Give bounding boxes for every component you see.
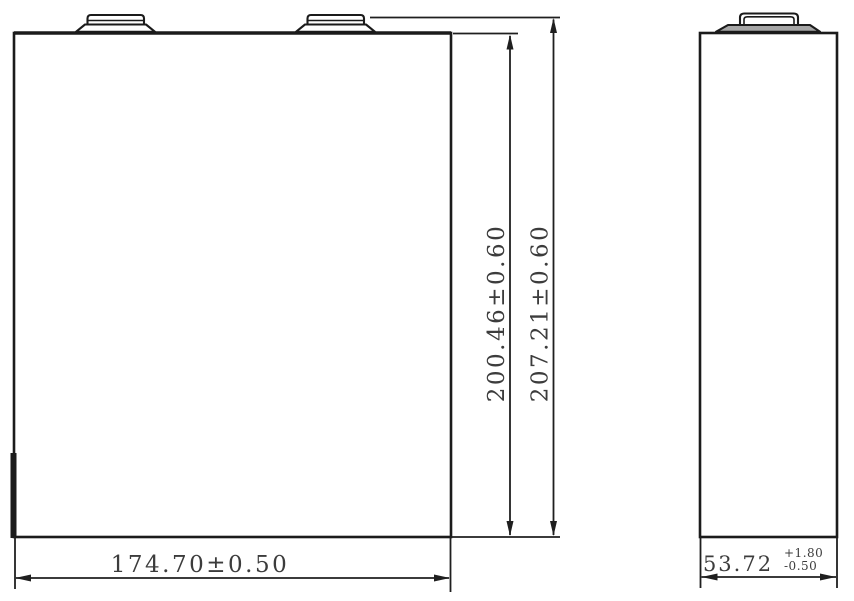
right-terminal-base — [296, 25, 375, 32]
engineering-drawing-canvas: 200.46±0.60 207.21±0.60 174.70±0.50 53.7… — [0, 0, 854, 601]
arrow-down-icon — [550, 521, 557, 536]
thickness-dimension-text: 53.72 — [703, 552, 773, 576]
thickness-tolerance-lower: -0.50 — [784, 559, 817, 573]
front-view-body-outline — [14, 33, 451, 537]
arrow-right-icon — [820, 574, 836, 581]
left-terminal-base — [76, 25, 155, 32]
front-view-left-edge-thick-mark — [11, 453, 17, 538]
arrow-up-icon — [507, 35, 514, 50]
battery-cell-drawing: 200.46±0.60 207.21±0.60 174.70±0.50 53.7… — [0, 0, 854, 601]
arrow-right-icon — [434, 575, 450, 582]
width-dimension-text: 174.70±0.50 — [111, 552, 289, 578]
arrow-left-icon — [15, 575, 31, 582]
thickness-dimension: 53.72 +1.80 -0.50 — [701, 537, 838, 588]
arrow-down-icon — [507, 521, 514, 536]
side-terminal-cap — [740, 14, 798, 26]
thickness-tolerance-upper: +1.80 — [784, 546, 823, 560]
front-view — [11, 15, 452, 538]
width-dimension: 174.70±0.50 — [15, 537, 451, 592]
arrow-up-icon — [550, 18, 557, 33]
body-height-dimension-text: 200.46±0.60 — [484, 224, 510, 402]
side-view-body-outline — [700, 33, 837, 537]
side-view — [700, 14, 837, 538]
total-height-dimension-text: 207.21±0.60 — [528, 224, 554, 402]
